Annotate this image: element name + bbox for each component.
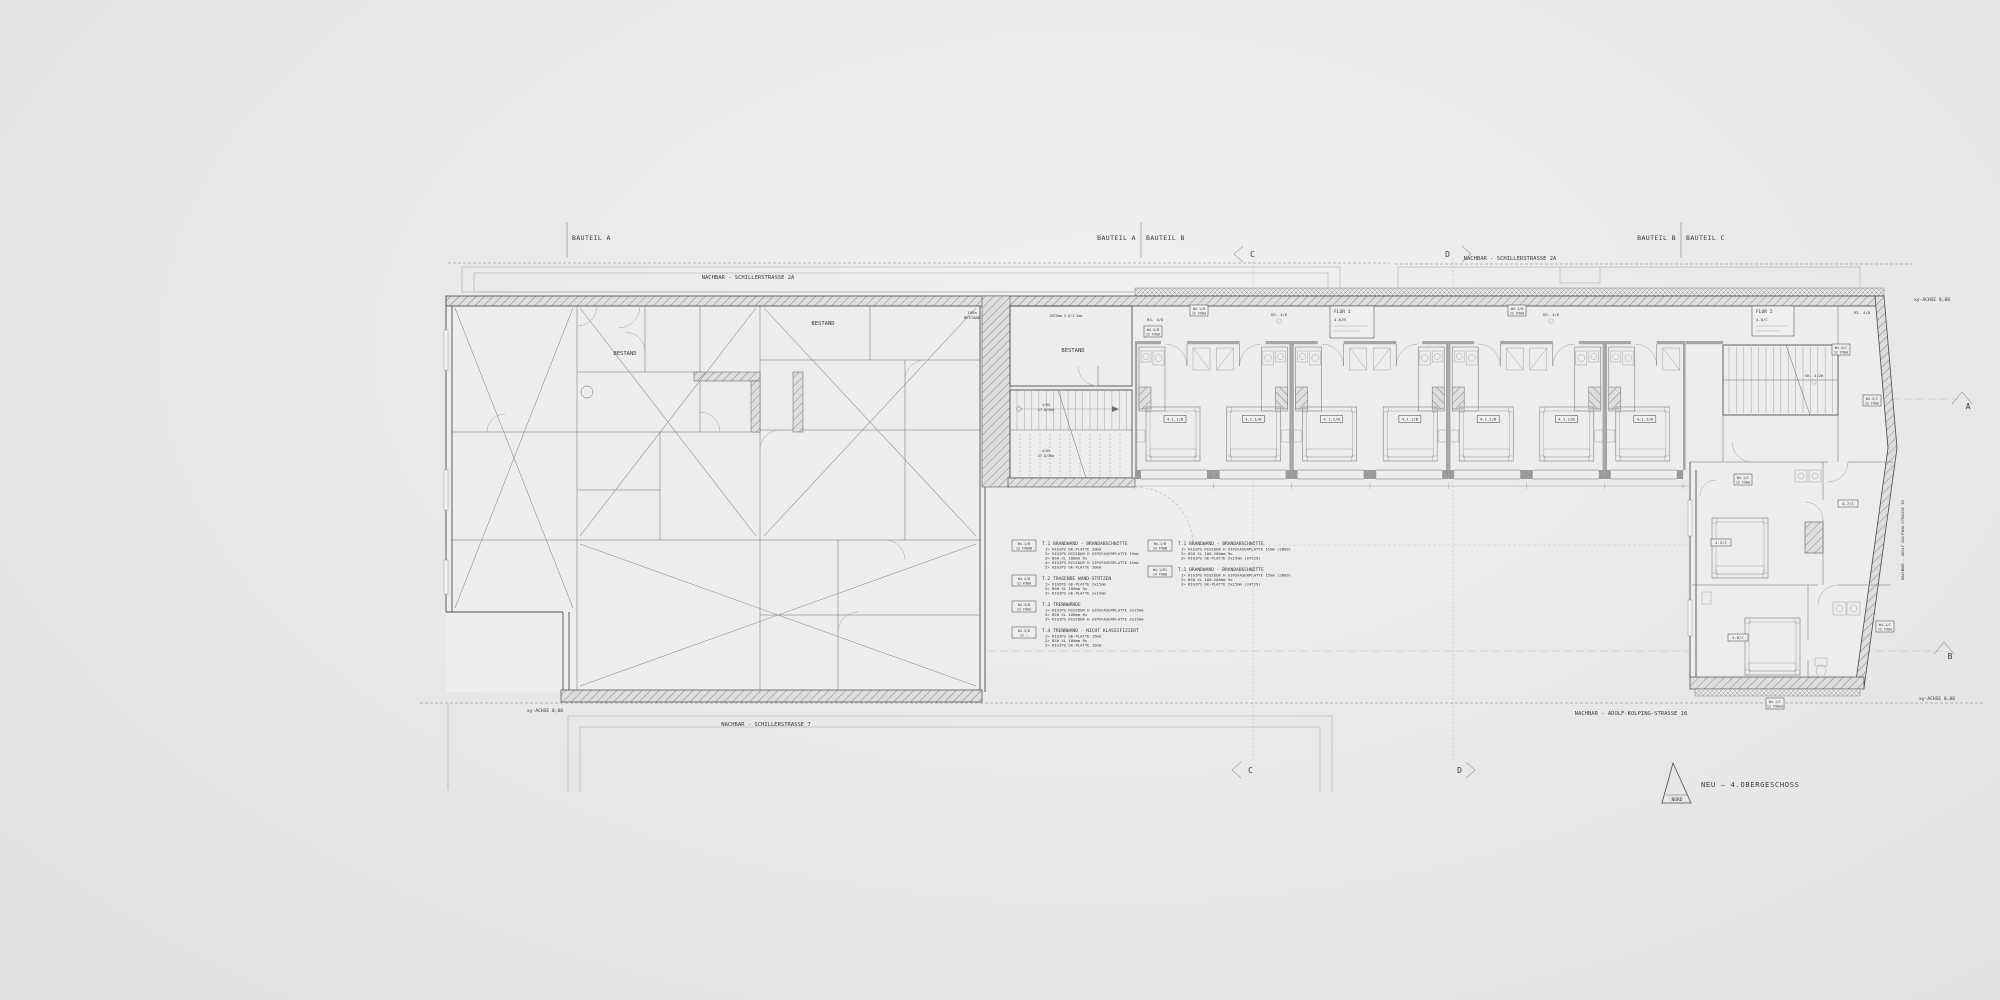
neighbor-bottom-left-label: NACHBAR - SCHILLERSTRASSE 7 (721, 722, 810, 728)
stair-run-label: 4/05 (1042, 403, 1050, 407)
tag-w41c: W4.1/C (1769, 700, 1781, 704)
svg-text:3> RIGIPS RIGIDUR H GIPSFASERP: 3> RIGIPS RIGIDUR H GIPSFASERPLATTE 2x15… (1045, 617, 1144, 622)
tag-w45c: W4.5/C (1866, 397, 1878, 401)
svg-text:W4.5/B: W4.5/B (1018, 629, 1030, 633)
neighbor-bottom-right-label: NACHBAR - ADOLF-KOLPING-STRASSE 16 (1575, 711, 1688, 717)
svg-text:4.1.1/B: 4.1.1/B (1167, 417, 1184, 422)
svg-text:4.1.1/B: 4.1.1/B (1480, 417, 1497, 422)
svg-text:W4.1/B1: W4.1/B1 (1153, 568, 1167, 572)
svg-text:14 F90B: 14 F90B (1153, 547, 1167, 551)
axis-xy-top-right: xy-ACHSE 0,00 (1914, 297, 1950, 303)
neighbor-top-right-label: NACHBAR - SCHILLERSTRASSE 2A (1464, 256, 1557, 262)
svg-text:12 —: 12 — (1020, 634, 1029, 638)
grid-c-bottom: C (1248, 766, 1253, 775)
room-label-bestand: BESTAND (613, 351, 636, 357)
svg-text:4.1.1/B: 4.1.1/B (1323, 417, 1340, 422)
svg-text:4.1.1/B: 4.1.1/B (1637, 417, 1654, 422)
svg-text:W4.2/B: W4.2/B (1018, 577, 1030, 581)
tag-w41b: W4.1/B (1193, 307, 1205, 311)
svg-text:12 F90A: 12 F90A (1510, 312, 1524, 316)
axis-xy-bottom-right: xy-ACHSE 0,00 (1919, 696, 1955, 702)
svg-text:12 F90A: 12 F90A (1192, 312, 1206, 316)
bauteil-c-label: BAUTEIL C (1686, 234, 1725, 242)
svg-text:12 F90A4: 12 F90A4 (1767, 705, 1783, 709)
stair-dim-label: 17.8/36m (1038, 408, 1054, 412)
tag-w41c: W4.1/C (1737, 476, 1749, 480)
svg-text:3> RIGIPS GK-PLATTE 15mm: 3> RIGIPS GK-PLATTE 15mm (1045, 643, 1102, 648)
tag-w41c: W4.1/C (1879, 623, 1891, 627)
flur1-info-block: FLUR 1 4.8/B (1330, 306, 1374, 338)
svg-text:12 F90A: 12 F90A (1834, 351, 1848, 355)
flur2-label: FLUR 2 (1756, 309, 1773, 315)
north-arrow-and-title: NORD NEU – 4.OBERGESCHOSS (1662, 763, 1800, 803)
stair-run-label: 4/05 (1042, 449, 1050, 453)
svg-text:12 F90A: 12 F90A (1865, 402, 1879, 406)
svg-text:12 F90A: 12 F90A (1878, 628, 1892, 632)
svg-text:4.1.1/B: 4.1.1/B (1558, 417, 1575, 422)
svg-text:12 F90A: 12 F90A (1017, 582, 1031, 586)
svg-text:14 F90B: 14 F90B (1153, 573, 1167, 577)
svg-text:12 F90A: 12 F90A (1146, 333, 1160, 337)
flur1-number: 4.8/B (1334, 317, 1346, 322)
grid-d-bottom: D (1457, 766, 1462, 775)
flur2-number: 4.6/C (1756, 317, 1768, 322)
tag-r3: R3. 4/D (1147, 317, 1164, 322)
svg-text:3> RIGIPS GK-PLATTE 2x15mm (24: 3> RIGIPS GK-PLATTE 2x15mm (24T29) (1181, 556, 1261, 561)
tag-w43c: W4.3/C (1835, 346, 1847, 350)
room-label-bestand: BESTAND (811, 321, 834, 327)
grid-c-top: C (1250, 250, 1255, 259)
floor-plan-sheet: BAUTEIL A BAUTEIL A BAUTEIL B BAUTEIL B … (0, 0, 2000, 1000)
window-dim-label: DR75mm 5.0/1.2mm (1050, 314, 1083, 318)
svg-text:W4.1/B: W4.1/B (1154, 542, 1166, 546)
svg-text:5> RIGIPS GK-PLATTE 20mm: 5> RIGIPS GK-PLATTE 20mm (1045, 565, 1102, 570)
svg-text:4.1.1/B: 4.1.1/B (1402, 417, 1419, 422)
bauteil-b-label: BAUTEIL B (1637, 234, 1676, 242)
neighbor-top-label: NACHBAR - SCHILLERSTRASSE 2A (702, 275, 795, 281)
tag-w41b: W4.1/B (1511, 307, 1523, 311)
room-tag-c2: 4.6/C (1732, 635, 1744, 640)
grid-d-top: D (1445, 250, 1450, 259)
svg-text:4.1.1/B: 4.1.1/B (1245, 417, 1262, 422)
neighbor-right-label: NACHBAR - ADOLF-KOLPING-STRASSE 16 (1900, 500, 1905, 580)
svg-text:W4.1/B: W4.1/B (1018, 542, 1030, 546)
grid-b-right: B (1948, 652, 1953, 661)
stair-dim-label: 17.8/36m (1038, 454, 1054, 458)
stair-shaft-label: SH. 4/20 (1805, 373, 1824, 378)
tag-sh: SH. 4/D (1543, 312, 1560, 317)
room-label-bestand: BESTAND (1061, 348, 1084, 354)
room-label-bestand: BESTAND (964, 315, 981, 320)
floor-plan-drawing: BAUTEIL A BAUTEIL A BAUTEIL B BAUTEIL B … (0, 0, 2000, 1000)
svg-text:W4.3/B: W4.3/B (1018, 603, 1030, 607)
tag-sh: SH. 4/D (1271, 312, 1288, 317)
north-label: NORD (1671, 797, 1682, 803)
grid-a-right: A (1966, 402, 1971, 411)
tag-w45b: W4.5/B (1147, 328, 1159, 332)
svg-text:3> RIGIPS GK-PLATTE 2x15mm: 3> RIGIPS GK-PLATTE 2x15mm (1045, 591, 1107, 596)
sheet-dividers: BAUTEIL A BAUTEIL A BAUTEIL B BAUTEIL B … (567, 222, 1725, 258)
room-tag-c1: 4.5/C (1715, 540, 1727, 545)
svg-text:12 F90AB: 12 F90AB (1016, 547, 1032, 551)
room-tag-c3: 4.7/C (1842, 501, 1854, 506)
tag-r3: R3. 4/D (1854, 310, 1871, 315)
bauteil-a-label: BAUTEIL A (572, 234, 611, 242)
flur1-label: FLUR 1 (1334, 309, 1351, 315)
north-arrow-icon (1662, 763, 1691, 803)
flur2-info-block: FLUR 2 4.6/C (1752, 306, 1794, 336)
wall-type-legend: W4.1/B 12 F90AB T.1 BRANDWAND - BRANDABS… (1012, 540, 1291, 648)
svg-text:3> RIGIPS GK-PLATTE 2x15mm (24: 3> RIGIPS GK-PLATTE 2x15mm (24T29) (1181, 582, 1261, 587)
svg-text:12 F90A: 12 F90A (1017, 608, 1031, 612)
axis-xy-bottom-left: xy-ACHSE 0,00 (527, 708, 563, 714)
building-footprint (446, 296, 1895, 692)
sheet-title: NEU – 4.OBERGESCHOSS (1701, 780, 1800, 789)
bauteil-b-label: BAUTEIL B (1146, 234, 1185, 242)
svg-text:12 F90A: 12 F90A (1736, 481, 1750, 485)
bauteil-a-label: BAUTEIL A (1097, 234, 1136, 242)
